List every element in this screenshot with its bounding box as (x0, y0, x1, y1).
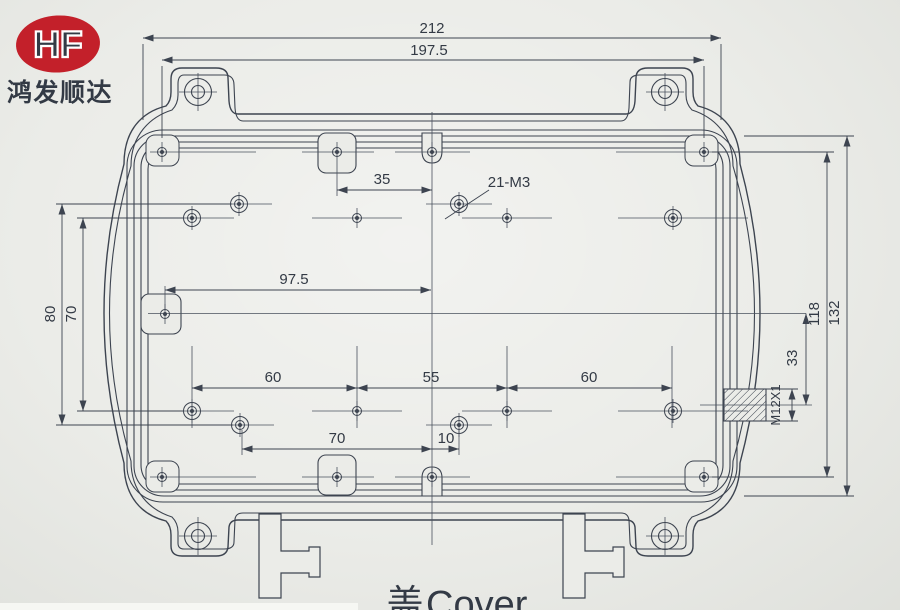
dim-right-hole-span: 118 (806, 302, 823, 326)
hinge-foot-left (259, 514, 320, 598)
mounting-ear-hole (646, 73, 684, 111)
mounting-ear-hole (179, 73, 217, 111)
dim-col-span-right: 60 (581, 369, 598, 386)
dim-corner-hole-span: 197.5 (410, 42, 448, 59)
dim-left-boss-offset: 97.5 (279, 271, 308, 288)
gland-thread-label: M12X1 (768, 384, 783, 425)
company-logo: HF 鸿发顺达 (7, 13, 113, 107)
dim-top-boss-offset: 35 (374, 171, 391, 188)
company-name: 鸿发顺达 (7, 78, 113, 107)
dim-bottom-boss-offset: 70 (329, 430, 346, 447)
part-title-en: Cover (426, 584, 528, 610)
part-title: 盖Cover (386, 584, 528, 610)
screw-boss-squares (141, 133, 442, 496)
dim-overall-width: 212 (419, 20, 444, 37)
technical-drawing-cover: 212 197.5 35 21-M3 97.5 60 55 60 70 10 8… (0, 0, 900, 610)
thread-callout-label: 21-M3 (488, 174, 531, 191)
dim-bottom-offset: 10 (438, 430, 455, 447)
dim-body-height: 132 (826, 300, 843, 325)
scan-edge (0, 603, 358, 610)
dim-left-inner-span: 70 (63, 306, 80, 323)
dim-col-span-mid: 55 (423, 369, 440, 386)
part-title-cn: 盖 (386, 584, 424, 610)
logo-monogram: HF (33, 24, 82, 65)
m3-holes (158, 142, 709, 487)
dim-left-outer-span: 80 (42, 306, 59, 323)
dim-col-span-left: 60 (265, 369, 282, 386)
hinge-foot-right (563, 514, 624, 598)
dim-gland-offset: 33 (784, 350, 801, 367)
